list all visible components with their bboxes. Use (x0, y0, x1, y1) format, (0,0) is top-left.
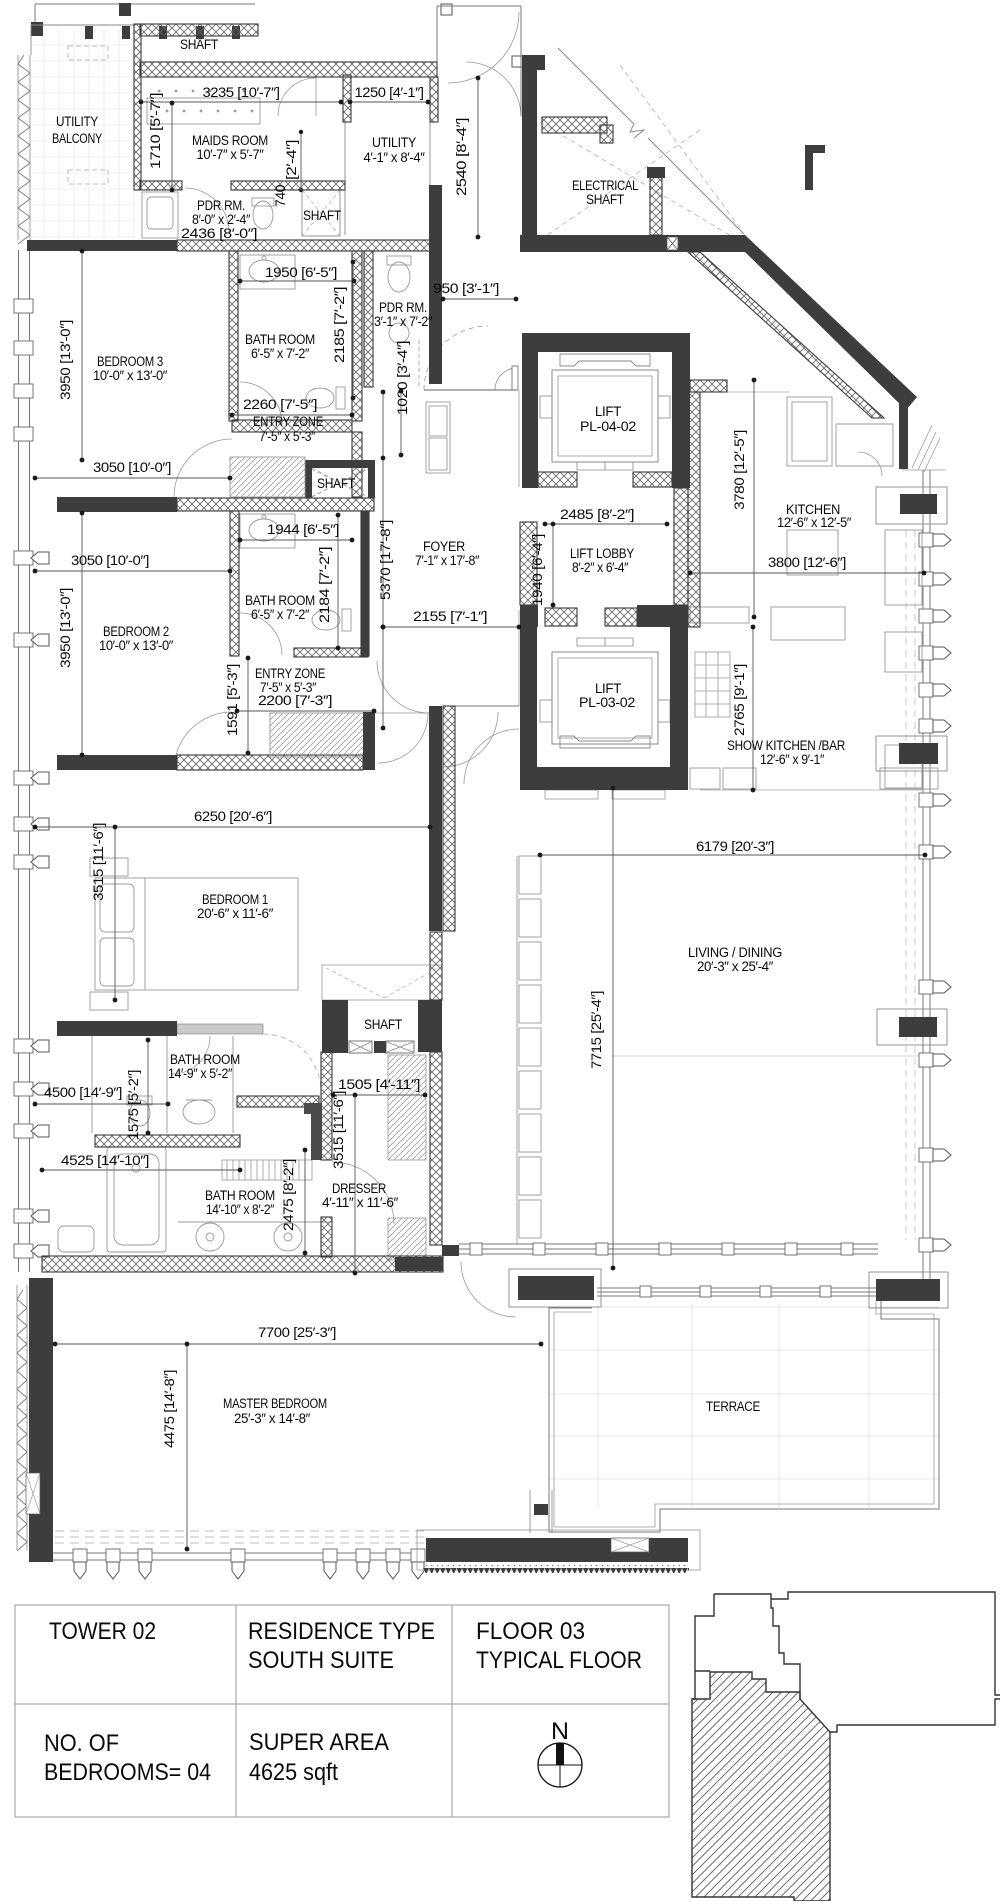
svg-text:ENTRY ZONE: ENTRY ZONE (255, 666, 325, 681)
svg-text:N: N (551, 1718, 569, 1745)
svg-text:1575 [5′-2″]: 1575 [5′-2″] (126, 1070, 141, 1140)
svg-text:10′-7″ x 5′-7″: 10′-7″ x 5′-7″ (197, 147, 265, 162)
svg-text:25′-3″ x 14′-8″: 25′-3″ x 14′-8″ (234, 1411, 311, 1426)
svg-text:SHAFT: SHAFT (586, 192, 624, 207)
svg-text:1940 [6′-4″]: 1940 [6′-4″] (530, 534, 545, 606)
svg-text:4525 [14′-10″]: 4525 [14′-10″] (61, 1153, 149, 1168)
svg-text:2485 [8′-2″]: 2485 [8′-2″] (560, 507, 634, 522)
svg-text:3′-1″ x 7′-2″: 3′-1″ x 7′-2″ (374, 314, 433, 329)
svg-text:2540 [8′-4″]: 2540 [8′-4″] (454, 118, 469, 196)
svg-text:14′-9″ x 5′-2″: 14′-9″ x 5′-2″ (168, 1066, 233, 1081)
svg-text:3515 [11′-6″]: 3515 [11′-6″] (91, 823, 106, 901)
svg-text:7700 [25′-3″]: 7700 [25′-3″] (258, 1325, 336, 1340)
svg-text:LIFT: LIFT (595, 681, 621, 696)
svg-text:3235 [10′-7″]: 3235 [10′-7″] (203, 85, 280, 100)
svg-text:LIFT: LIFT (595, 404, 621, 419)
svg-text:12′-6″ x 9′-1″: 12′-6″ x 9′-1″ (760, 752, 825, 767)
svg-text:1591 [5′-3″]: 1591 [5′-3″] (225, 664, 240, 736)
svg-text:FOYER: FOYER (423, 539, 466, 554)
svg-text:4625 sqft: 4625 sqft (249, 1759, 338, 1786)
svg-text:2184 [7′-2″]: 2184 [7′-2″] (317, 547, 332, 623)
svg-text:7′-1″ x 17′-8″: 7′-1″ x 17′-8″ (415, 553, 480, 568)
svg-text:BALCONY: BALCONY (52, 131, 102, 146)
svg-text:2260 [7′-5″]: 2260 [7′-5″] (243, 397, 317, 412)
svg-text:UTILITY: UTILITY (56, 114, 98, 129)
svg-text:LIVING / DINING: LIVING / DINING (688, 945, 782, 960)
svg-text:950 [3′-1″]: 950 [3′-1″] (433, 281, 499, 296)
svg-text:SOUTH SUITE: SOUTH SUITE (248, 1647, 394, 1674)
svg-text:SHOW KITCHEN /BAR: SHOW KITCHEN /BAR (727, 738, 845, 753)
svg-text:6′-5″ x 7′-2″: 6′-5″ x 7′-2″ (251, 346, 310, 361)
svg-text:3050 [10′-0″]: 3050 [10′-0″] (71, 553, 149, 568)
svg-text:3515 [11′-6″]: 3515 [11′-6″] (331, 1091, 346, 1169)
svg-text:6250 [20′-6″]: 6250 [20′-6″] (194, 809, 272, 824)
svg-text:4500 [14′-9″]: 4500 [14′-9″] (44, 1085, 122, 1100)
svg-text:BATH ROOM: BATH ROOM (245, 332, 315, 347)
svg-text:BATH ROOM: BATH ROOM (245, 593, 315, 608)
svg-text:4475 [14′-8″]: 4475 [14′-8″] (162, 1370, 177, 1448)
svg-text:3050 [10′-0″]: 3050 [10′-0″] (93, 460, 171, 475)
svg-text:BATH ROOM: BATH ROOM (205, 1188, 275, 1203)
svg-text:SHAFT: SHAFT (303, 208, 341, 223)
svg-text:NO. OF: NO. OF (44, 1730, 119, 1757)
svg-text:TYPICAL FLOOR: TYPICAL FLOOR (476, 1647, 642, 1674)
svg-text:4′-1″ x 8′-4″: 4′-1″ x 8′-4″ (364, 150, 426, 165)
svg-text:10′-0″ x 13′-0″: 10′-0″ x 13′-0″ (99, 638, 174, 653)
svg-text:3950 [13′-0″]: 3950 [13′-0″] (58, 320, 73, 400)
svg-text:PDR RM.: PDR RM. (197, 198, 245, 213)
svg-text:8′-0″ x 2′-4″: 8′-0″ x 2′-4″ (192, 212, 251, 227)
svg-text:SHAFT: SHAFT (317, 476, 355, 491)
svg-text:3800 [12′-6″]: 3800 [12′-6″] (768, 555, 846, 570)
svg-text:1944 [6′-5″]: 1944 [6′-5″] (267, 522, 339, 537)
svg-text:6179 [20′-3″]: 6179 [20′-3″] (696, 839, 774, 854)
svg-text:BEDROOM 1: BEDROOM 1 (202, 892, 268, 907)
svg-text:2475 [8′-2″]: 2475 [8′-2″] (281, 1159, 296, 1231)
svg-text:PL-03-02: PL-03-02 (579, 695, 635, 710)
svg-text:BEDROOMS= 04: BEDROOMS= 04 (44, 1759, 211, 1786)
svg-text:TOWER 02: TOWER 02 (49, 1618, 156, 1645)
svg-text:7715 [25′-4″]: 7715 [25′-4″] (589, 991, 604, 1069)
svg-text:BATH ROOM: BATH ROOM (170, 1052, 240, 1067)
svg-text:5370 [17′-8″]: 5370 [17′-8″] (378, 520, 393, 600)
svg-text:20′-3″ x 25′-4″: 20′-3″ x 25′-4″ (697, 959, 774, 974)
svg-text:10′-0″ x 13′-0″: 10′-0″ x 13′-0″ (93, 368, 168, 383)
svg-text:MASTER BEDROOM: MASTER BEDROOM (223, 1396, 327, 1411)
svg-text:4′-11″ x 11′-6″: 4′-11″ x 11′-6″ (322, 1195, 399, 1210)
svg-text:TERRACE: TERRACE (706, 1399, 760, 1414)
svg-text:2765 [9′-1″]: 2765 [9′-1″] (732, 664, 747, 736)
svg-text:ENTRY ZONE: ENTRY ZONE (253, 414, 323, 429)
svg-text:MAIDS ROOM: MAIDS ROOM (192, 133, 268, 148)
svg-text:[2′-4″]: [2′-4″] (284, 140, 299, 180)
svg-text:SUPER AREA: SUPER AREA (249, 1729, 389, 1756)
svg-text:DRESSER: DRESSER (332, 1181, 386, 1196)
svg-text:6′-5″ x 7′-2″: 6′-5″ x 7′-2″ (251, 607, 310, 622)
svg-text:2155 [7′-1″]: 2155 [7′-1″] (413, 609, 487, 624)
svg-text:7′-5″ x 5′-3″: 7′-5″ x 5′-3″ (259, 429, 316, 444)
svg-text:1250 [4′-1″]: 1250 [4′-1″] (355, 85, 424, 100)
svg-text:SHAFT: SHAFT (364, 1017, 402, 1032)
svg-text:740: 740 (273, 185, 288, 207)
svg-text:BEDROOM 2: BEDROOM 2 (103, 624, 169, 639)
svg-text:SHAFT: SHAFT (180, 37, 218, 52)
svg-text:UTILITY: UTILITY (372, 135, 416, 150)
svg-text:1950 [6′-5″]: 1950 [6′-5″] (265, 265, 337, 280)
svg-text:2200 [7′-3″]: 2200 [7′-3″] (258, 693, 332, 708)
svg-text:PL-04-02: PL-04-02 (580, 419, 636, 434)
svg-text:20′-6″ x 11′-6″: 20′-6″ x 11′-6″ (197, 906, 274, 921)
svg-text:3780 [12′-5″]: 3780 [12′-5″] (732, 430, 747, 510)
svg-text:1710 [5′-7″]: 1710 [5′-7″] (148, 93, 163, 169)
svg-text:1020 [3′-4″]: 1020 [3′-4″] (395, 341, 410, 415)
svg-text:LIFT LOBBY: LIFT LOBBY (570, 546, 634, 561)
svg-text:3950 [13′-0″]: 3950 [13′-0″] (58, 588, 73, 668)
svg-text:ELECTRICAL: ELECTRICAL (572, 178, 639, 193)
svg-text:2436 [8′-0″]: 2436 [8′-0″] (181, 226, 257, 241)
svg-text:PDR RM.: PDR RM. (379, 300, 427, 315)
svg-text:RESIDENCE TYPE: RESIDENCE TYPE (248, 1618, 435, 1645)
svg-text:12′-6″ x 12′-5″: 12′-6″ x 12′-5″ (777, 515, 852, 530)
svg-text:2185 [7′-2″]: 2185 [7′-2″] (332, 287, 347, 363)
svg-text:1505 [4′-11″]: 1505 [4′-11″] (338, 1077, 420, 1092)
svg-text:14′-10″ x 8′-2″: 14′-10″ x 8′-2″ (206, 1202, 275, 1217)
svg-text:8′-2″ x 6′-4″: 8′-2″ x 6′-4″ (572, 560, 629, 575)
svg-text:BEDROOM 3: BEDROOM 3 (97, 354, 163, 369)
svg-text:FLOOR 03: FLOOR 03 (476, 1618, 585, 1645)
